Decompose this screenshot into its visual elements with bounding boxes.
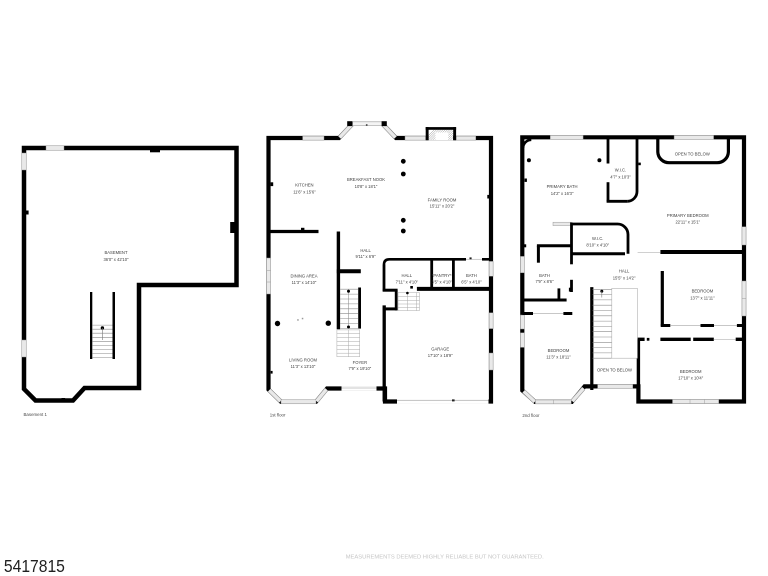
svg-text:15'5" x 14'2": 15'5" x 14'2" — [613, 275, 636, 280]
svg-text:10'8" x 18'1": 10'8" x 18'1" — [355, 184, 378, 189]
svg-text:17'10" x 10'4": 17'10" x 10'4" — [678, 376, 704, 381]
svg-text:4'7" x 10'3": 4'7" x 10'3" — [610, 174, 631, 179]
svg-text:36'0" x 42'10": 36'0" x 42'10" — [103, 257, 129, 262]
svg-text:11'3" x 14'10": 11'3" x 14'10" — [292, 280, 317, 285]
svg-text:BEDROOM: BEDROOM — [680, 369, 702, 374]
svg-text:FOYER: FOYER — [353, 360, 367, 365]
svg-text:BASEMENT: BASEMENT — [104, 250, 127, 255]
svg-text:W.I.C.: W.I.C. — [615, 168, 626, 173]
svg-text:BREAKFAST NOOK: BREAKFAST NOOK — [347, 177, 385, 182]
svg-text:7'11" x 4'10": 7'11" x 4'10" — [396, 280, 419, 285]
svg-text:PRIMARY BEDROOM: PRIMARY BEDROOM — [667, 213, 709, 218]
svg-text:HALL: HALL — [402, 273, 413, 278]
svg-text:22'11" x 15'1": 22'11" x 15'1" — [675, 220, 700, 225]
svg-text:BATH: BATH — [466, 273, 477, 278]
svg-text:5417815: 5417815 — [4, 556, 65, 576]
svg-text:6'5" x 4'10": 6'5" x 4'10" — [461, 280, 482, 285]
svg-text:Basement 1: Basement 1 — [24, 412, 48, 417]
svg-text:BEDROOM: BEDROOM — [692, 289, 714, 294]
svg-text:OPEN TO BELOW: OPEN TO BELOW — [597, 368, 632, 373]
svg-text:9'11" x 6'9": 9'11" x 6'9" — [356, 254, 377, 259]
svg-text:DINING AREA: DINING AREA — [291, 274, 318, 279]
svg-text:PRIMARY BATH: PRIMARY BATH — [547, 184, 578, 189]
svg-text:11'6" x 15'6": 11'6" x 15'6" — [293, 189, 316, 194]
svg-text:17'10" x 18'9": 17'10" x 18'9" — [428, 353, 454, 358]
svg-text:7'9" x 8'6": 7'9" x 8'6" — [535, 279, 554, 284]
svg-text:FAMILY ROOM: FAMILY ROOM — [428, 198, 457, 203]
svg-text:1st floor: 1st floor — [270, 412, 286, 417]
svg-text:BATH: BATH — [539, 273, 550, 278]
svg-text:GARAGE: GARAGE — [431, 347, 449, 352]
svg-text:HALL: HALL — [360, 248, 371, 253]
svg-text:LIVING ROOM: LIVING ROOM — [289, 358, 317, 363]
svg-text:14'2" x 16'3": 14'2" x 16'3" — [551, 191, 574, 196]
svg-text:BEDROOM: BEDROOM — [548, 348, 570, 353]
svg-text:HALL: HALL — [619, 269, 630, 274]
svg-text:KITCHEN: KITCHEN — [295, 183, 313, 188]
svg-text:MEASUREMENTS DEEMED HIGHLY REL: MEASUREMENTS DEEMED HIGHLY RELIABLE BUT … — [346, 555, 544, 561]
svg-text:2nd floor: 2nd floor — [522, 413, 540, 418]
svg-text:15'11" x 20'2": 15'11" x 20'2" — [430, 203, 455, 208]
svg-text:7'9" x 19'10": 7'9" x 19'10" — [349, 366, 372, 371]
svg-text:*PANTRY*: *PANTRY* — [432, 273, 452, 278]
svg-text:OPEN TO BELOW: OPEN TO BELOW — [675, 152, 710, 157]
svg-text:8'10" x 4'10": 8'10" x 4'10" — [586, 243, 609, 248]
svg-text:13'7" x 11'11": 13'7" x 11'11" — [690, 295, 715, 300]
svg-text:W.I.C.: W.I.C. — [592, 236, 603, 241]
svg-text:11'3" x 13'10": 11'3" x 13'10" — [291, 364, 316, 369]
svg-text:3'5" x 4'10": 3'5" x 4'10" — [431, 280, 452, 285]
svg-text:11'3" x 18'11": 11'3" x 18'11" — [546, 355, 571, 360]
